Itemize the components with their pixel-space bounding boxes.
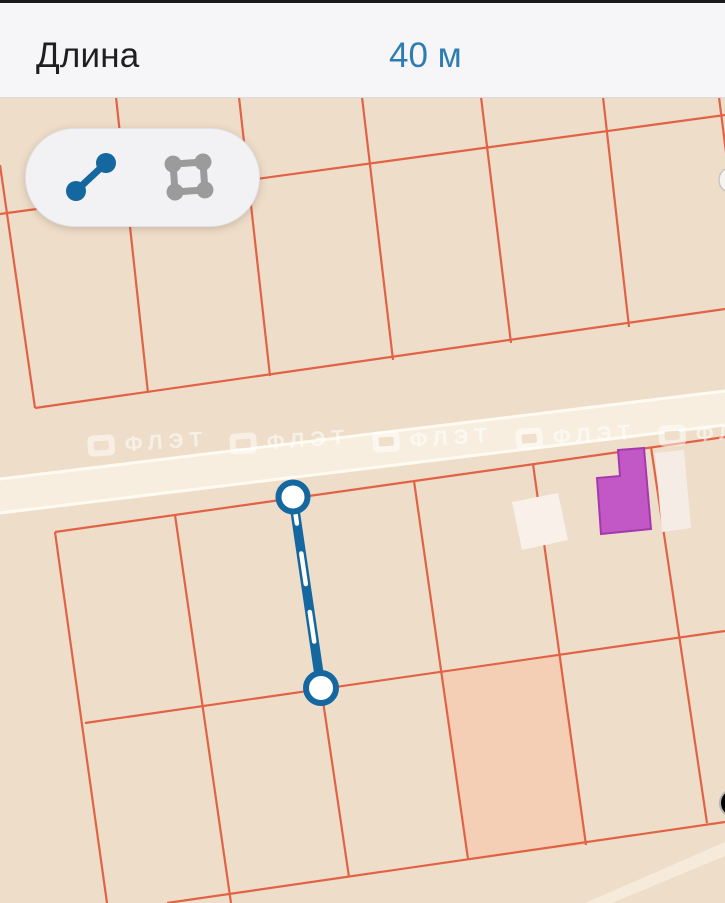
measurement-endpoint-end[interactable] xyxy=(306,673,336,703)
measure-toolbar xyxy=(25,128,260,227)
top-strip xyxy=(0,0,725,3)
building-white-left xyxy=(512,493,568,550)
line-measure-button[interactable] xyxy=(62,149,120,205)
area-measure-button[interactable] xyxy=(160,149,218,205)
measurement-label: Длина xyxy=(36,36,139,76)
measurement-value: 40 м xyxy=(389,36,462,76)
area-measure-icon xyxy=(160,149,218,205)
measurement-header: Длина 40 м xyxy=(0,3,725,98)
app-screen: ФЛЭТ ФЛЭТ ФЛЭТ ФЛЭТ xyxy=(0,0,725,903)
measurement-endpoint-start[interactable] xyxy=(279,483,308,512)
line-measure-icon xyxy=(62,149,120,205)
